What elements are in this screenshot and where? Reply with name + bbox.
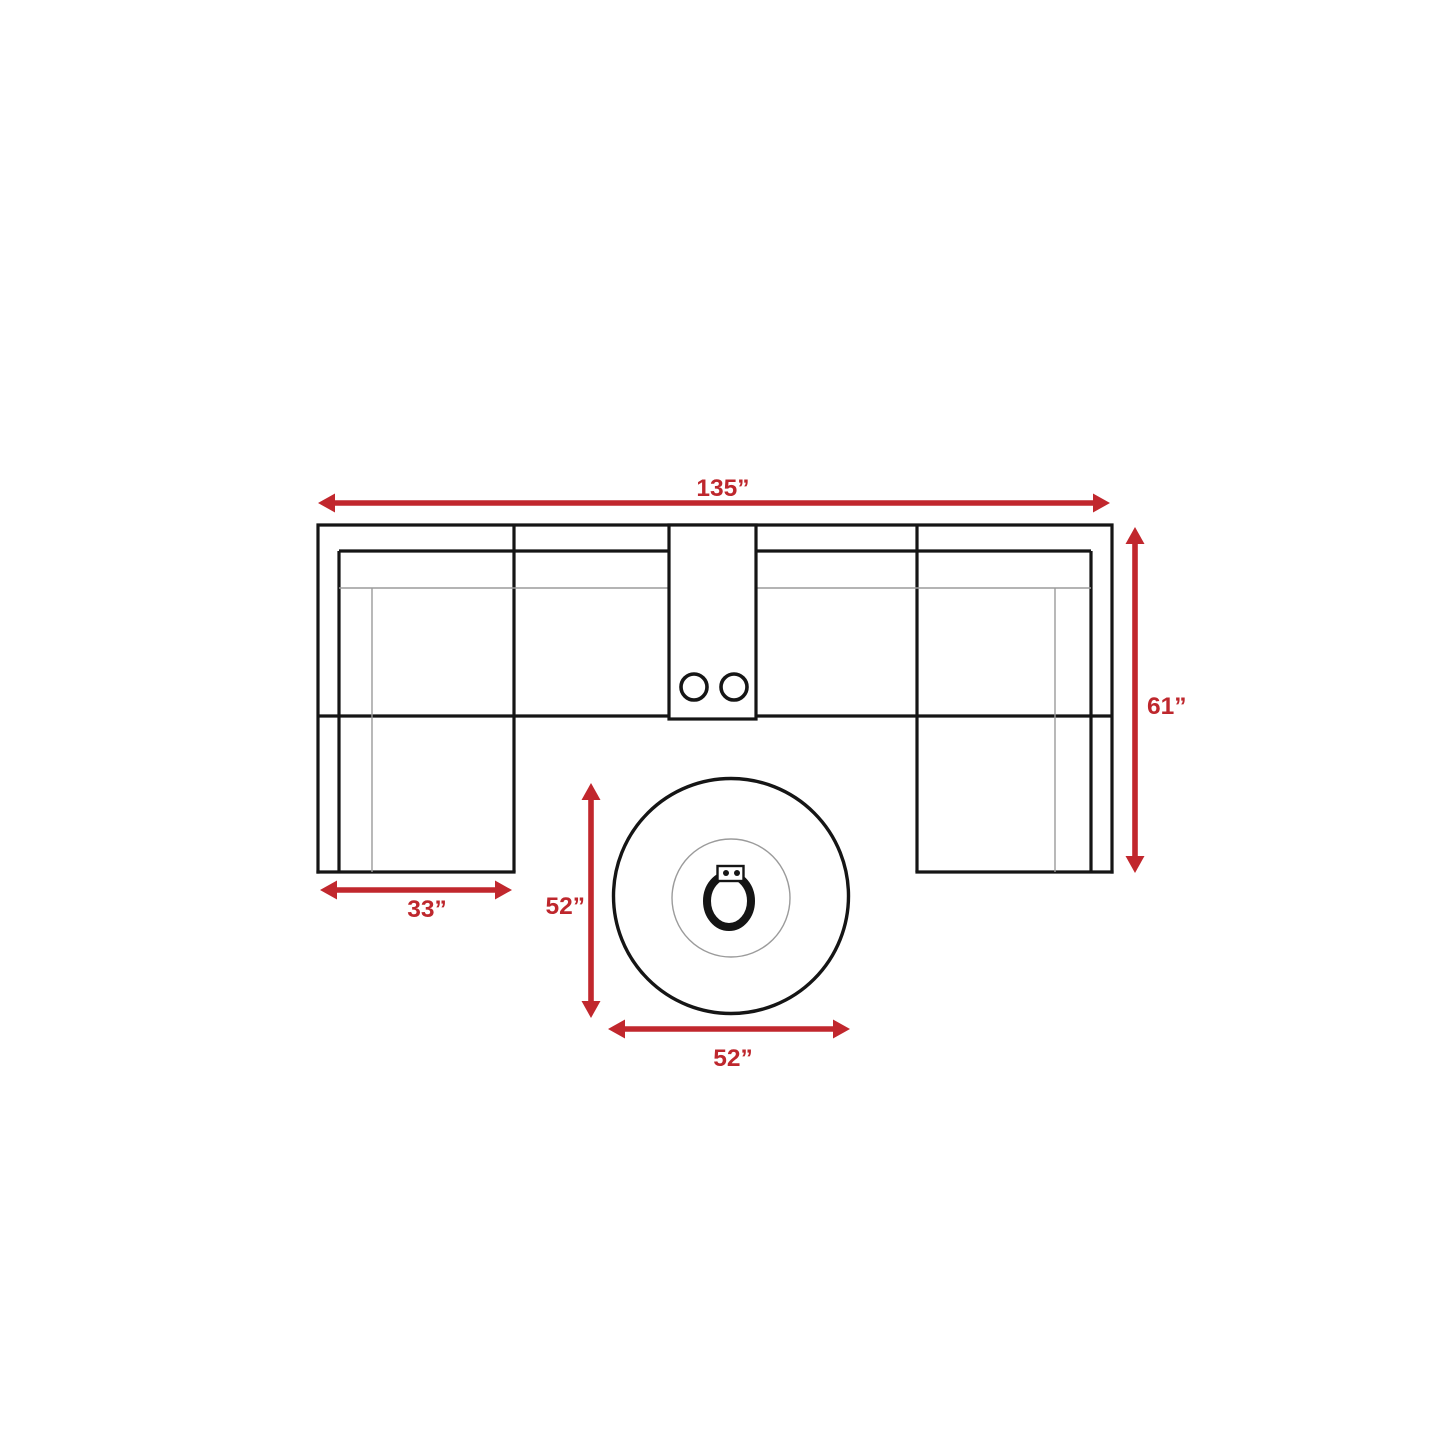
sectional-sofa-dimension-diagram: 135” 61” 33” 52” 52” — [0, 0, 1445, 1445]
table-width-dimension-arrow — [608, 1020, 850, 1039]
chaise-width-label: 33” — [407, 896, 447, 923]
arrowhead-up-icon — [582, 783, 601, 800]
table-depth-label: 52” — [545, 893, 585, 920]
cup-holder-icon — [681, 674, 707, 700]
arrowhead-right-icon — [1093, 494, 1110, 513]
igniter-knob-icon — [723, 870, 729, 876]
center-console — [669, 525, 756, 719]
arrowhead-down-icon — [582, 1001, 601, 1018]
arrowhead-down-icon — [1126, 856, 1145, 873]
table-width-label: 52” — [713, 1045, 753, 1072]
table-outer-edge — [614, 779, 849, 1014]
arrowhead-right-icon — [495, 881, 512, 900]
arrowhead-left-icon — [318, 494, 335, 513]
sofa-depth-dimension-arrow — [1126, 527, 1145, 873]
sofa-width-label: 135” — [696, 475, 749, 502]
sofa-depth-label: 61” — [1147, 693, 1187, 720]
arrowhead-left-icon — [320, 881, 337, 900]
fire-pit-table — [614, 779, 849, 1014]
arrowhead-up-icon — [1126, 527, 1145, 544]
igniter-knob-icon — [734, 870, 740, 876]
cup-holder-icon — [721, 674, 747, 700]
arrowhead-right-icon — [833, 1020, 850, 1039]
arrowhead-left-icon — [608, 1020, 625, 1039]
floorplan-diagram: 135” 61” 33” 52” 52” — [0, 0, 1445, 1445]
